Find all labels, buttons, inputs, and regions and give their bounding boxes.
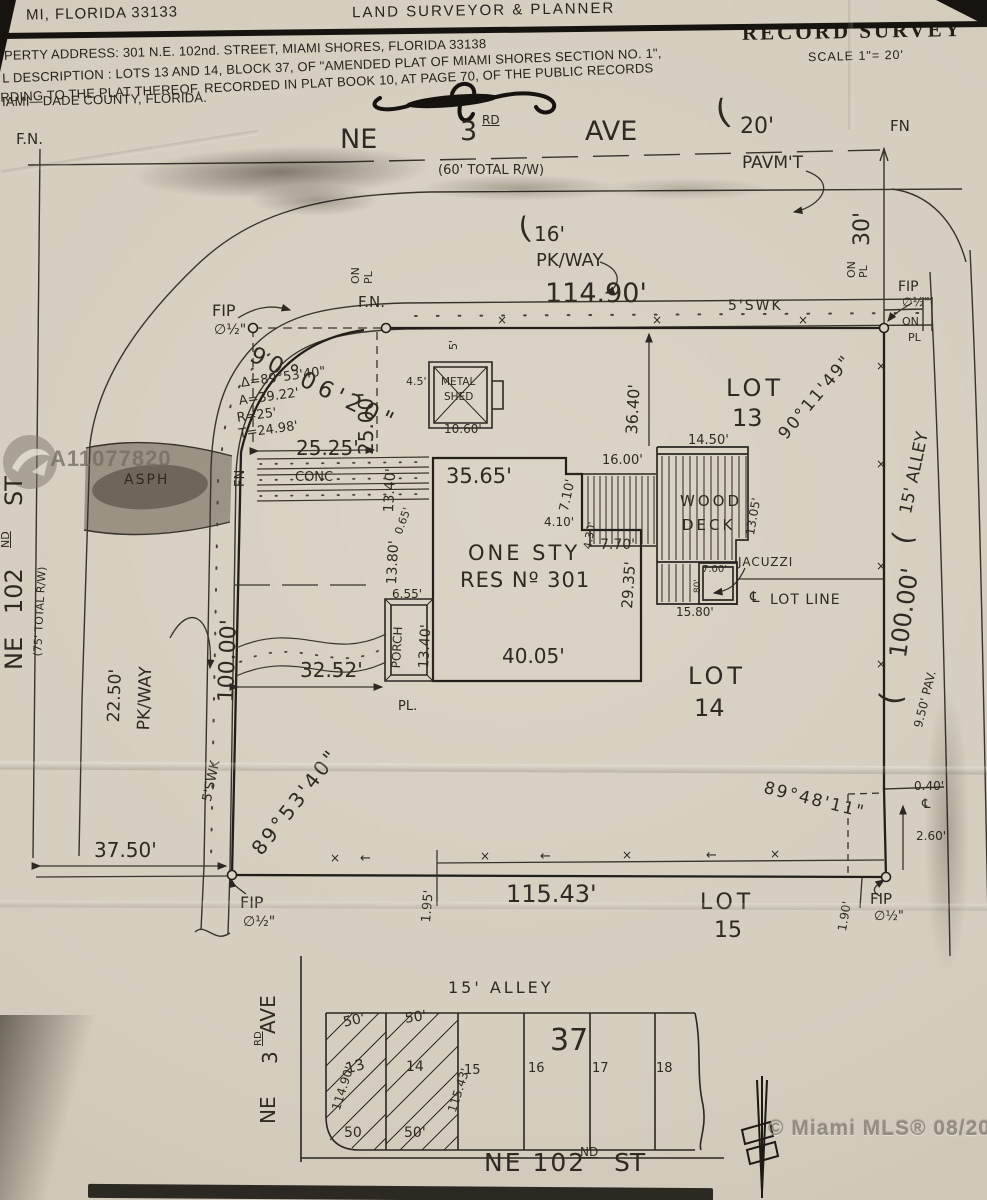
survey-label: PORCH (390, 626, 404, 668)
survey-label: 114.90' (330, 1065, 355, 1112)
survey-label: PAVM'T (742, 155, 803, 172)
survey-label: 6.55' (392, 588, 422, 600)
survey-label: 4.5' (406, 376, 427, 387)
survey-label: 90°11'49" (776, 352, 856, 443)
survey-label: 14.50' (688, 434, 729, 447)
survey-label: ∅½" (902, 296, 930, 308)
survey-label: 32.52' (300, 660, 363, 680)
survey-label: 5'SWK (201, 759, 222, 802)
survey-label: 1.95' (420, 890, 436, 924)
survey-label: 7.10' (558, 478, 577, 513)
survey-label: 0.40' (914, 780, 944, 792)
survey-label: 3 (460, 118, 477, 145)
survey-label: ( (888, 529, 918, 547)
survey-label: 115.43' (446, 1067, 471, 1114)
survey-label: × (876, 560, 886, 572)
survey-label: 13 (732, 406, 763, 430)
survey-label: ST (2, 476, 26, 506)
survey-label: ( (516, 214, 534, 246)
survey-label: ( (876, 690, 908, 707)
survey-label: 102 (2, 568, 26, 614)
survey-label: NE (2, 637, 26, 670)
survey-label: 7.00' (702, 565, 727, 575)
survey-label: 100.00' (886, 566, 922, 659)
survey-label: ← (360, 852, 371, 865)
label-layer: F.N.NE3RDAVE(60' TOTAL R/W)(20'PAVM'TFN(… (0, 0, 987, 1200)
survey-label: × (876, 360, 886, 372)
survey-label: .80' (694, 579, 703, 596)
survey-label: 22.50' (106, 669, 125, 723)
survey-label: 30' (852, 212, 874, 246)
survey-label: 1.90' (836, 900, 853, 932)
survey-label: JACUZZI (738, 556, 793, 568)
survey-label: 35.65' (446, 466, 512, 487)
survey-label: NE (340, 126, 377, 153)
survey-label: 14 (406, 1060, 424, 1074)
survey-label: FN (890, 119, 910, 134)
survey-label: PL. (398, 700, 417, 713)
survey-label: FIP (212, 303, 236, 319)
survey-label: RD (482, 114, 500, 126)
survey-label: 36.40' (624, 384, 643, 435)
survey-label: ( (712, 95, 734, 131)
survey-label: × (652, 314, 662, 326)
survey-label: 13.80' (385, 540, 401, 585)
survey-label: 37 (550, 1026, 588, 1056)
survey-label: ST (614, 1150, 645, 1175)
survey-label: AVE (585, 118, 637, 145)
survey-label: 40.05' (502, 646, 565, 666)
survey-label: F.N. (358, 295, 385, 310)
survey-label: × (497, 314, 507, 326)
survey-label: (60' TOTAL R/W) (438, 164, 544, 177)
survey-label: 89°48'11" (762, 780, 867, 822)
survey-label: 16 (528, 1062, 545, 1075)
survey-label: PK/WAY (536, 252, 603, 270)
survey-label: FN (234, 470, 247, 487)
survey-label: 16' (534, 224, 565, 244)
survey-label: NE 102 (484, 1150, 586, 1175)
survey-label: 15.80' (676, 606, 714, 618)
survey-label: FIP (898, 280, 919, 294)
survey-label: ASPH (124, 473, 169, 487)
survey-label: ← (540, 850, 551, 863)
survey-label: ON (902, 316, 919, 327)
survey-label: LOT LINE (770, 593, 841, 607)
survey-label: × (770, 848, 780, 860)
survey-label: 18 (656, 1062, 673, 1075)
survey-label: 16.00' (602, 454, 643, 467)
survey-label: WOOD (680, 494, 742, 509)
scanned-survey-page: MI, FLORIDA 33133 LAND SURVEYOR & PLANNE… (0, 0, 987, 1200)
survey-label: 5' (448, 340, 459, 350)
survey-label: ∅½" (874, 910, 904, 923)
survey-label: 5'SWK (728, 299, 783, 313)
survey-label: 50' (404, 1126, 426, 1140)
survey-label: 20' (740, 116, 774, 138)
survey-label: METAL (441, 377, 475, 388)
survey-label: 4.30' (582, 521, 598, 550)
survey-label: ON (846, 261, 857, 278)
survey-label: × (622, 849, 632, 861)
survey-label: SHED (444, 392, 473, 403)
survey-label: × (876, 658, 886, 670)
survey-label: CONC (295, 471, 333, 484)
survey-label: 115.43' (506, 882, 597, 906)
survey-label: 89°53'40" (248, 745, 343, 858)
survey-label: ON (350, 267, 361, 284)
survey-label: PK/WAY (136, 666, 155, 730)
survey-label: NE (258, 1096, 278, 1124)
survey-label: LOT (700, 892, 754, 914)
survey-label: DECK (682, 518, 735, 533)
survey-label: LOT (688, 664, 746, 688)
survey-label: ∅½" (214, 323, 246, 337)
survey-label: 9.50' PAV. (912, 670, 938, 729)
survey-label: ND (0, 531, 11, 548)
survey-label: 50 (344, 1126, 362, 1140)
survey-label: ∅½" (243, 915, 275, 929)
survey-label: ND (580, 1146, 598, 1158)
survey-label: (75' TOTAL R/W) (32, 566, 48, 656)
page-corner-shadow (0, 1015, 105, 1200)
survey-label: 4.10' (544, 516, 574, 528)
survey-label: × (798, 314, 808, 326)
survey-label: 10.60' (444, 423, 482, 435)
survey-label: 25.25' (296, 438, 359, 458)
survey-label: RD (254, 1031, 264, 1046)
survey-label: 2.60' (916, 830, 946, 842)
survey-label: 7.70' (600, 538, 635, 552)
survey-label: PL (858, 265, 869, 278)
mls-watermark-credit: © Miami MLS® 08/2021 (768, 1118, 987, 1139)
survey-label: 13.05' (744, 497, 762, 536)
survey-label: 15' ALLEY (448, 980, 554, 996)
survey-label: 13.40' (417, 624, 433, 669)
survey-label: ← (706, 849, 717, 862)
survey-label: × (330, 852, 340, 864)
survey-label: 17 (592, 1062, 609, 1075)
survey-label: 13.40' (382, 468, 398, 513)
survey-label: 100.00' (216, 619, 241, 703)
survey-label: ℄ (750, 590, 760, 605)
survey-label: FIP (870, 892, 892, 907)
survey-label: 14 (694, 696, 725, 720)
survey-label: ℄ (922, 798, 930, 811)
survey-label: 50' (404, 1009, 427, 1026)
survey-label: 50' (342, 1011, 366, 1029)
survey-label: F.N. (16, 132, 43, 147)
survey-label: × (480, 850, 490, 862)
survey-label: AVE (258, 995, 278, 1034)
survey-label: FIP (240, 895, 264, 911)
survey-label: 3 (260, 1051, 280, 1064)
survey-label: PL (363, 271, 374, 284)
mls-watermark-id: A11077820 (50, 448, 172, 470)
survey-label: LOT (726, 376, 784, 400)
survey-label: 114.90' (545, 280, 647, 307)
survey-label: 25.00' (356, 392, 376, 455)
survey-label: 29.35' (620, 561, 638, 609)
survey-label: 15 (714, 920, 742, 942)
survey-label: RES Nº 301 (460, 570, 590, 591)
survey-label: 37.50' (94, 840, 157, 860)
survey-label: ONE STY (468, 543, 580, 564)
survey-label: 15' ALLEY (898, 430, 932, 515)
survey-label: × (876, 458, 886, 470)
survey-label: PL (908, 332, 921, 343)
